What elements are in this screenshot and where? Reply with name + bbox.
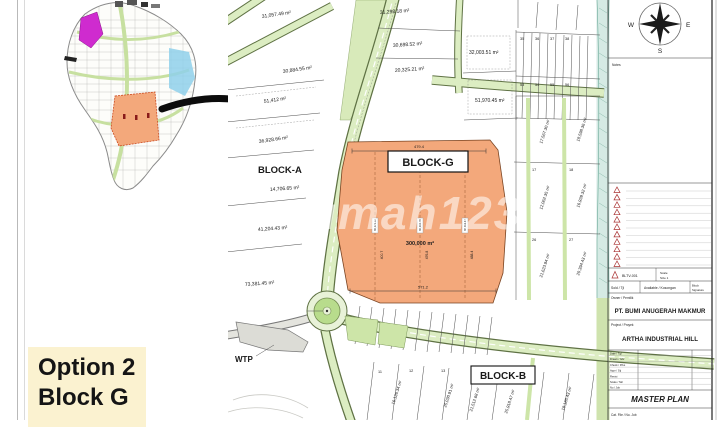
dim-bottom: 571.2 — [418, 285, 429, 290]
table-row-label: No / Job — [610, 386, 621, 390]
parcel-label: 51,970.45 m² — [475, 98, 505, 104]
table-row-label: Appr / Stj — [610, 369, 621, 373]
lot-number: 53 — [520, 83, 524, 87]
block-g-label: BLOCK-G — [402, 157, 453, 169]
block-g-area: 300,000 m² — [406, 240, 434, 247]
block-b-label: BLOCK-B — [480, 371, 526, 382]
dim-v3: 488.4 — [470, 251, 474, 260]
table-row-label: Date / Tgl — [610, 352, 622, 356]
owner-name: PT. BUMI ANUGERAH MAKMUR — [615, 309, 706, 315]
lot-number: 11 — [378, 370, 382, 374]
scale-line-1: Scale — [660, 271, 668, 275]
lot-number: 56 — [565, 83, 569, 87]
scan-line-left-2 — [24, 0, 25, 420]
block-a-label: BLOCK-A — [258, 165, 302, 176]
dim-top: 479.4 — [414, 144, 425, 149]
project-name: ARTHA INDUSTRIAL HILL — [622, 336, 698, 343]
ref-code: BLTV-001 — [622, 274, 638, 278]
parcel-label: 32,003.51 m² — [469, 50, 499, 56]
available-cell: Available / Kosongan — [644, 286, 676, 290]
lot-number: 38 — [565, 37, 569, 41]
lot-number: 26 — [532, 238, 536, 242]
block-g-parcel: 60,376.02 60,310.76 60,312.47 479.4 571.… — [337, 140, 507, 303]
option-caption-box: Option 2 Block G — [28, 347, 146, 427]
lot-number: 36 — [535, 37, 539, 41]
lot-number: 37 — [550, 37, 554, 41]
roundabout — [307, 291, 347, 331]
signature-cell-2: Signature — [692, 288, 704, 292]
lot-number: 17 — [532, 168, 536, 172]
scan-line-left — [17, 0, 18, 420]
lot-number: 13 — [441, 369, 445, 373]
stamp-3: 60,312.47 — [463, 219, 467, 231]
lot-number: 12 — [409, 369, 413, 373]
table-row-label: Scale / Skl — [610, 380, 623, 384]
footer-label: Cat. File / No. Job — [611, 413, 637, 417]
stamp-2: 60,310.76 — [418, 219, 422, 231]
scale-line-2: Size 1 — [660, 276, 669, 280]
compass-s: S — [658, 48, 663, 55]
table-row-label: Check / Prks — [610, 363, 626, 367]
compass-n: N — [658, 0, 663, 2]
compass-w: W — [628, 22, 635, 29]
stamp-1: 60,376.02 — [373, 219, 377, 231]
table-row-label: Drawn / Gbr — [610, 357, 625, 361]
masterplan-drawing: 60,376.02 60,310.76 60,312.47 479.4 571.… — [228, 0, 720, 420]
option-line-2: Block G — [38, 383, 146, 413]
signature-cell-1: Block — [692, 284, 699, 288]
lot-number: 55 — [550, 83, 554, 87]
owner-label: Owner / Pemilik — [611, 296, 634, 300]
dim-v1: 400.7 — [380, 251, 384, 260]
table-row-label: Revisi — [610, 374, 618, 378]
project-label: Project / Proyek — [611, 323, 634, 327]
masterplan-screenshot: { "option_box": {"line1": "Option 2", "l… — [0, 0, 720, 420]
sold-cell: Sold / Tjl — [611, 286, 624, 290]
lot-number: 27 — [569, 238, 573, 242]
option-line-1: Option 2 — [38, 353, 146, 383]
wtp-label: WTP — [235, 355, 253, 364]
lot-number: 35 — [520, 37, 524, 41]
compass-e: E — [686, 22, 691, 29]
lot-number: 54 — [535, 83, 539, 87]
notes-label: Notes — [612, 63, 621, 67]
lot-number: 18 — [569, 168, 573, 172]
block-b-label-group: BLOCK-B — [471, 366, 535, 384]
doc-title: MASTER PLAN — [631, 395, 689, 404]
dim-v2: 476.8 — [425, 251, 429, 260]
